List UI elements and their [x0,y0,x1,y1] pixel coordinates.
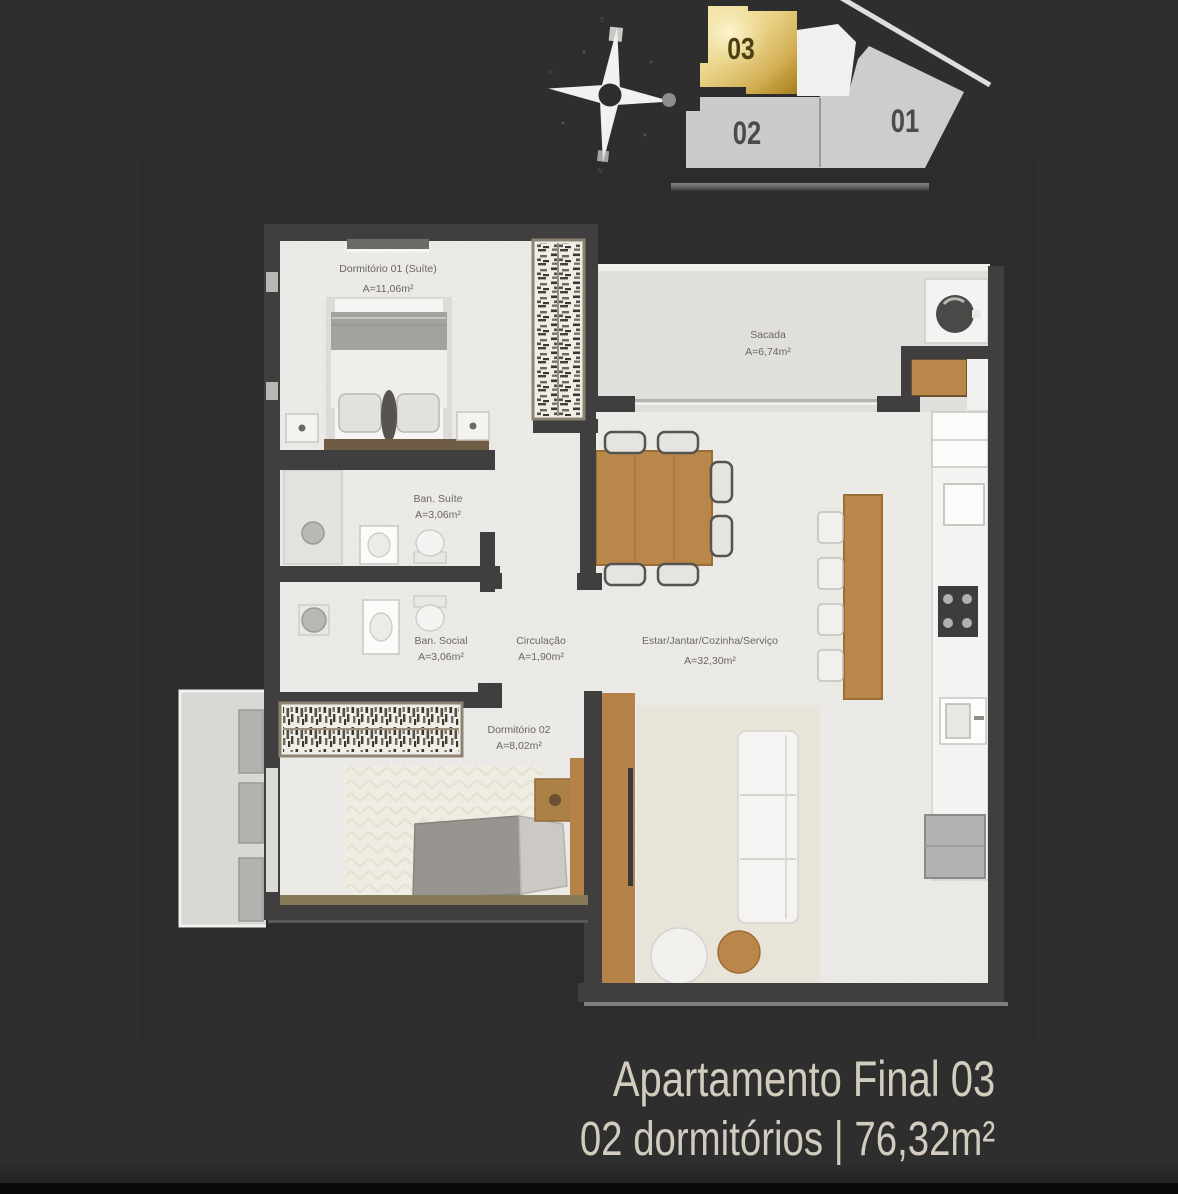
svg-text:A=3,06m²: A=3,06m² [415,509,461,521]
svg-text:A=1,90m²: A=1,90m² [518,651,564,663]
svg-text:Ban. Suíte: Ban. Suíte [413,493,462,505]
svg-text:Ban. Social: Ban. Social [414,635,467,647]
svg-text:A=11,06m²: A=11,06m² [363,283,414,295]
svg-text:A=8,02m²: A=8,02m² [496,740,542,752]
svg-text:A=3,06m²: A=3,06m² [418,651,464,663]
svg-text:N: N [597,168,602,175]
svg-text:F: F [549,70,553,77]
svg-text:Dormitório 01 (Suíte): Dormitório 01 (Suíte) [339,263,436,275]
svg-text:Apartamento Final 03: Apartamento Final 03 [613,1051,995,1107]
svg-text:Circulação: Circulação [516,635,566,647]
svg-text:Dormitório 02: Dormitório 02 [487,724,550,736]
svg-text:Sacada: Sacada [750,329,786,341]
svg-text:02 dormitórios | 76,32m²: 02 dormitórios | 76,32m² [580,1113,995,1166]
svg-text:A=32,30m²: A=32,30m² [684,655,736,667]
svg-text:S: S [600,17,605,24]
svg-text:Estar/Jantar/Cozinha/Serviço: Estar/Jantar/Cozinha/Serviço [642,635,778,647]
svg-text:A=6,74m²: A=6,74m² [745,346,791,358]
svg-text:03: 03 [727,31,755,65]
svg-text:02: 02 [733,116,761,151]
svg-text:01: 01 [891,104,919,139]
